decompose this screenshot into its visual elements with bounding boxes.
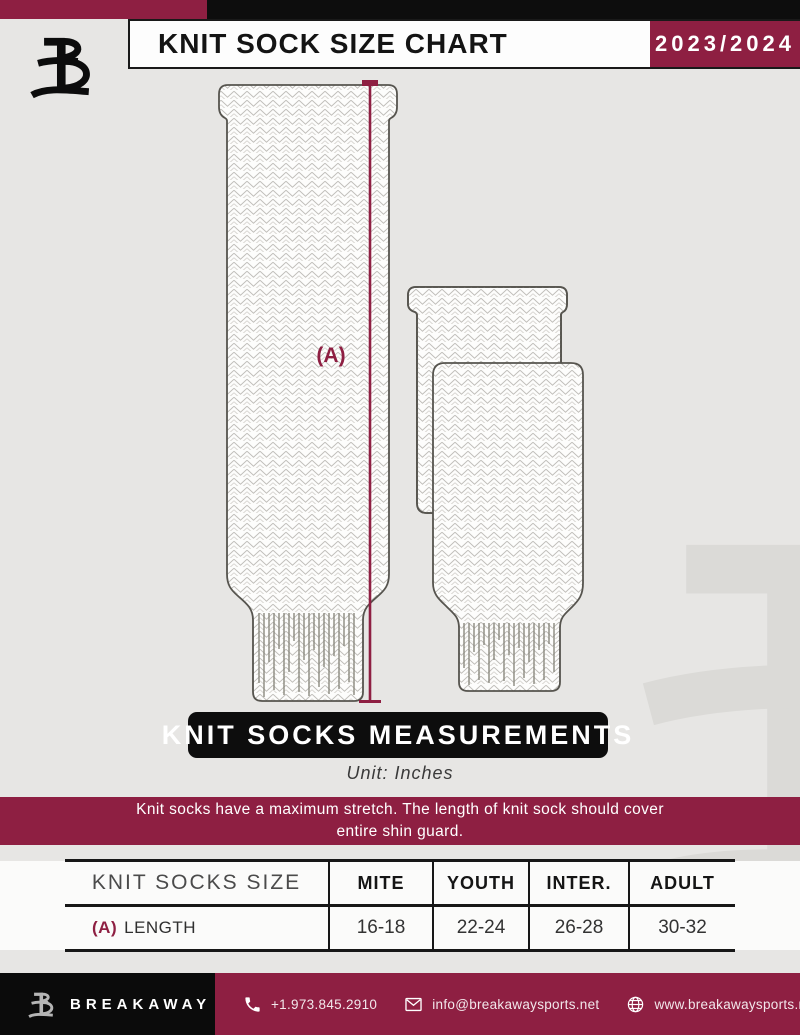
measurements-banner-text: KNIT SOCKS MEASUREMENTS	[162, 720, 635, 751]
measurement-label-a: (A)	[316, 344, 345, 367]
measurements-banner: KNIT SOCKS MEASUREMENTS	[188, 712, 608, 758]
footer: BREAKAWAY +1.973.845.2910 info@breakaway…	[0, 973, 800, 1035]
value-youth: 22-24	[432, 907, 528, 949]
brand-name: BREAKAWAY	[70, 996, 211, 1013]
title-bar: KNIT SOCK SIZE CHART 2023/2024	[128, 19, 800, 69]
row-label-text: LENGTH	[124, 918, 196, 938]
row-label-length: (A) LENGTH	[65, 907, 328, 949]
col-header-mite: MITE	[328, 862, 432, 904]
website-url: www.breakawaysports.net	[654, 997, 800, 1012]
email-address: info@breakawaysports.net	[432, 997, 599, 1012]
footer-brand-logo-icon	[24, 985, 60, 1023]
size-table: KNIT SOCKS SIZE MITE YOUTH INTER. ADULT …	[65, 859, 735, 952]
col-header-size: KNIT SOCKS SIZE	[65, 862, 328, 904]
footer-brand-block: BREAKAWAY	[0, 973, 215, 1035]
website-contact: www.breakawaysports.net	[626, 995, 800, 1014]
table-header-row: KNIT SOCKS SIZE MITE YOUTH INTER. ADULT	[65, 862, 735, 907]
top-strip-maroon	[0, 0, 207, 19]
value-inter: 26-28	[528, 907, 628, 949]
col-header-inter: INTER.	[528, 862, 628, 904]
globe-icon	[626, 995, 645, 1014]
phone-number: +1.973.845.2910	[271, 997, 377, 1012]
brand-logo	[20, 20, 106, 110]
unit-label: Unit: Inches	[0, 763, 800, 784]
table-row: (A) LENGTH 16-18 22-24 26-28 30-32	[65, 907, 735, 952]
phone-contact: +1.973.845.2910	[243, 995, 377, 1014]
phone-icon	[243, 995, 262, 1014]
season-badge: 2023/2024	[650, 21, 800, 67]
note-line-2: entire shin guard.	[337, 821, 464, 843]
title-container: KNIT SOCK SIZE CHART	[130, 21, 650, 67]
col-header-adult: ADULT	[628, 862, 735, 904]
value-adult: 30-32	[628, 907, 735, 949]
note-line-1: Knit socks have a maximum stretch. The l…	[136, 799, 664, 821]
row-label-prefix: (A)	[92, 918, 117, 938]
knit-sock-size-chart-flyer: KNIT SOCK SIZE CHART 2023/2024	[0, 0, 800, 1035]
email-icon	[404, 995, 423, 1014]
stretch-note-banner: Knit socks have a maximum stretch. The l…	[0, 797, 800, 845]
footer-contacts: +1.973.845.2910 info@breakawaysports.net…	[215, 973, 800, 1035]
col-header-youth: YOUTH	[432, 862, 528, 904]
value-mite: 16-18	[328, 907, 432, 949]
page-title: KNIT SOCK SIZE CHART	[158, 28, 508, 60]
adult-sock-illustration	[219, 85, 397, 701]
measurement-line	[359, 80, 381, 702]
email-contact: info@breakawaysports.net	[404, 995, 599, 1014]
